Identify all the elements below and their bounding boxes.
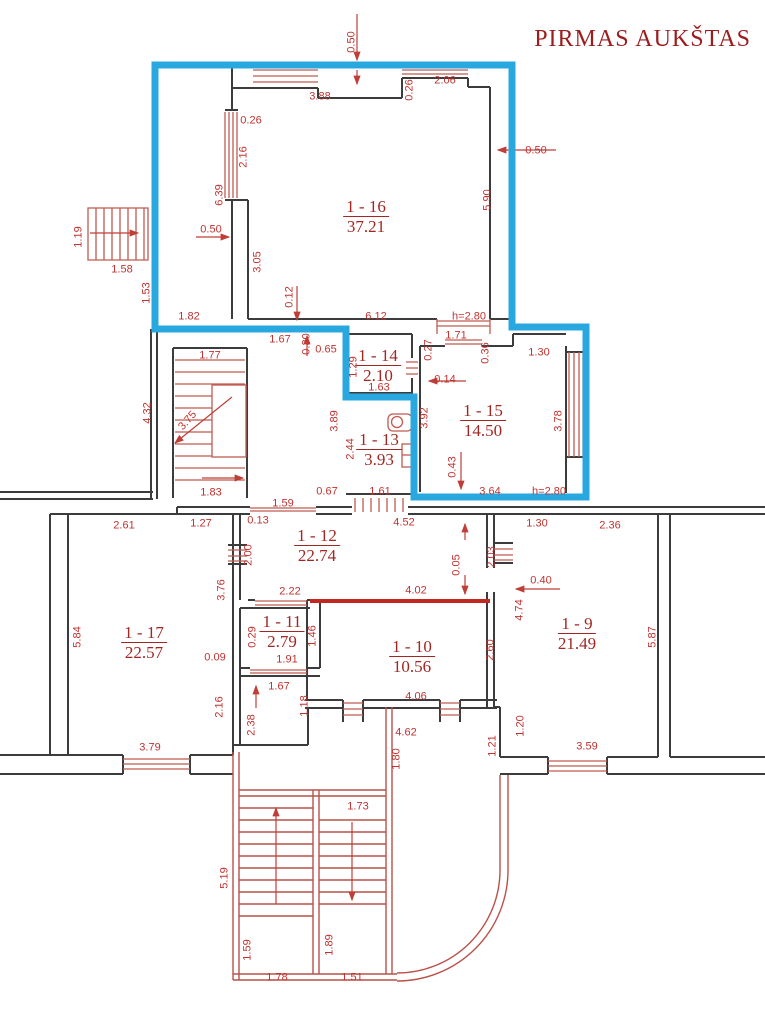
room-area: 22.57 — [121, 643, 167, 663]
dimension-label: 3.64 — [479, 487, 500, 498]
room-area: 10.56 — [389, 657, 435, 677]
room-area: 2.79 — [259, 632, 304, 652]
dimension-label: 0.30 — [302, 333, 313, 354]
dimension-label: 1.51 — [341, 973, 362, 984]
room-label: 1 - 1514.50 — [460, 401, 506, 441]
dimension-label: 1.21 — [488, 735, 499, 756]
dimension-label: 3.78 — [554, 410, 565, 431]
dimension-label: 4.52 — [393, 518, 414, 529]
room-label: 1 - 1722.57 — [121, 623, 167, 663]
stair-landing — [212, 385, 246, 457]
room-label: 1 - 921.49 — [558, 614, 596, 654]
dimension-label: 0.27 — [424, 339, 435, 360]
dimension-label: 3.89 — [330, 410, 341, 431]
dimension-label: 0.05 — [452, 554, 463, 575]
dimension-label: 1.73 — [347, 802, 368, 813]
room-area: 21.49 — [558, 634, 596, 654]
bottom-stairwell — [233, 707, 508, 981]
dimension-label: 6.39 — [215, 184, 226, 205]
dimension-label: 0.14 — [434, 375, 455, 386]
dimension-label: 0.67 — [316, 487, 337, 498]
dimension-label: 3.92 — [420, 407, 431, 428]
dimension-label: 3.59 — [576, 742, 597, 753]
dimension-label: 0.50 — [525, 146, 546, 157]
room-label: 1 - 1010.56 — [389, 637, 435, 677]
dimension-label: 1.80 — [392, 748, 403, 769]
dimension-label: 0.29 — [248, 626, 259, 647]
dimension-label: 1.59 — [272, 499, 293, 510]
dimension-label: 5.84 — [73, 626, 84, 647]
dimension-label: 1.19 — [74, 226, 85, 247]
page-title: PIRMAS AUKŠTAS — [534, 26, 751, 53]
dimension-label: 0.26 — [240, 116, 261, 127]
dimension-label: 1.91 — [276, 655, 297, 666]
dimension-label: 2.16 — [239, 146, 250, 167]
dimension-label: h=2.80 — [532, 487, 566, 498]
room-number: 1 - 13 — [356, 430, 402, 450]
dimension-label: 2.61 — [113, 521, 134, 532]
dimension-label: 0.40 — [530, 576, 551, 587]
dimension-label: 2.38 — [247, 714, 258, 735]
dimension-label: 0.43 — [448, 456, 459, 477]
room-number: 1 - 15 — [460, 401, 506, 421]
dimension-label: 4.74 — [515, 599, 526, 620]
dimension-label: 0.26 — [405, 79, 416, 100]
dimension-label: 1.61 — [369, 487, 390, 498]
dimension-label: 1.53 — [142, 282, 153, 303]
dimension-label: 2.60 — [486, 639, 497, 660]
floor-plan-page: PIRMAS AUKŠTAS 0.503.880.262.060.505.900… — [0, 0, 765, 1024]
dimension-label: 5.90 — [483, 189, 494, 210]
dimension-label: 5.87 — [648, 626, 659, 647]
floor-plan-drawing — [0, 0, 765, 1024]
room-label: 1 - 1637.21 — [343, 197, 389, 237]
room-number: 1 - 16 — [343, 197, 389, 217]
dimension-label: 2.06 — [434, 76, 455, 87]
room-label: 1 - 1222.74 — [294, 526, 340, 566]
room-number: 1 - 12 — [294, 526, 340, 546]
dimension-label: 1.30 — [528, 348, 549, 359]
dimension-label: 1.78 — [266, 973, 287, 984]
room-number: 1 - 14 — [355, 346, 401, 366]
room-area: 14.50 — [460, 421, 506, 441]
dimension-label: 3.79 — [139, 743, 160, 754]
dimension-label: 2.03 — [487, 546, 498, 567]
dimension-label: 1.59 — [243, 939, 254, 960]
dimension-label: 1.67 — [268, 682, 289, 693]
dimension-label: 1.89 — [325, 934, 336, 955]
dimension-label: 1.18 — [300, 695, 311, 716]
dimension-label: 0.50 — [347, 31, 358, 52]
dimension-label: 1.20 — [516, 715, 527, 736]
dimension-label: 1.67 — [269, 335, 290, 346]
walls — [0, 66, 765, 774]
dimension-label: 4.06 — [405, 692, 426, 703]
windows-and-stairs — [88, 70, 607, 771]
dimension-label: 1.71 — [445, 331, 466, 342]
dimension-label: 5.19 — [220, 867, 231, 888]
room-area: 22.74 — [294, 546, 340, 566]
dimension-label: 1.77 — [199, 351, 220, 362]
dimension-label: 2.22 — [279, 587, 300, 598]
dimension-label: 3.88 — [309, 92, 330, 103]
dimension-label: 1.58 — [111, 265, 132, 276]
dimension-label: 3.76 — [217, 579, 228, 600]
dimension-label: 4.32 — [143, 402, 154, 423]
room-number: 1 - 10 — [389, 637, 435, 657]
dimension-label: 1.83 — [200, 488, 221, 499]
dimension-label: 0.13 — [247, 516, 268, 527]
dimension-label: 0.50 — [200, 225, 221, 236]
dimension-label: 0.12 — [285, 286, 296, 307]
room-number: 1 - 9 — [558, 614, 596, 634]
dimension-label: 3.05 — [253, 251, 264, 272]
dimension-label: 0.65 — [315, 345, 336, 356]
dimension-label: 0.36 — [481, 342, 492, 363]
room-number: 1 - 11 — [259, 612, 304, 632]
room-label: 1 - 112.79 — [259, 612, 304, 652]
dimension-label: 2.36 — [599, 521, 620, 532]
dimension-label: 4.62 — [395, 728, 416, 739]
dimension-label: 2.00 — [244, 544, 255, 565]
dimension-label: 0.09 — [204, 653, 225, 664]
dimension-label: 1.27 — [190, 519, 211, 530]
room-number: 1 - 17 — [121, 623, 167, 643]
room-label: 1 - 133.93 — [356, 430, 402, 470]
dimension-label: 2.44 — [346, 438, 357, 459]
dimension-label: 4.02 — [405, 586, 426, 597]
dimension-label: 1.82 — [178, 312, 199, 323]
room-label: 1 - 142.10 — [355, 346, 401, 386]
room-area: 37.21 — [343, 217, 389, 237]
room-area: 3.93 — [356, 450, 402, 470]
room-area: 2.10 — [355, 366, 401, 386]
dimension-label: h=2.80 — [452, 312, 486, 323]
dimension-label: 6.12 — [365, 312, 386, 323]
dimension-label: 1.30 — [526, 519, 547, 530]
dimension-label: 2.16 — [215, 696, 226, 717]
dimension-label: 1.46 — [308, 625, 319, 646]
